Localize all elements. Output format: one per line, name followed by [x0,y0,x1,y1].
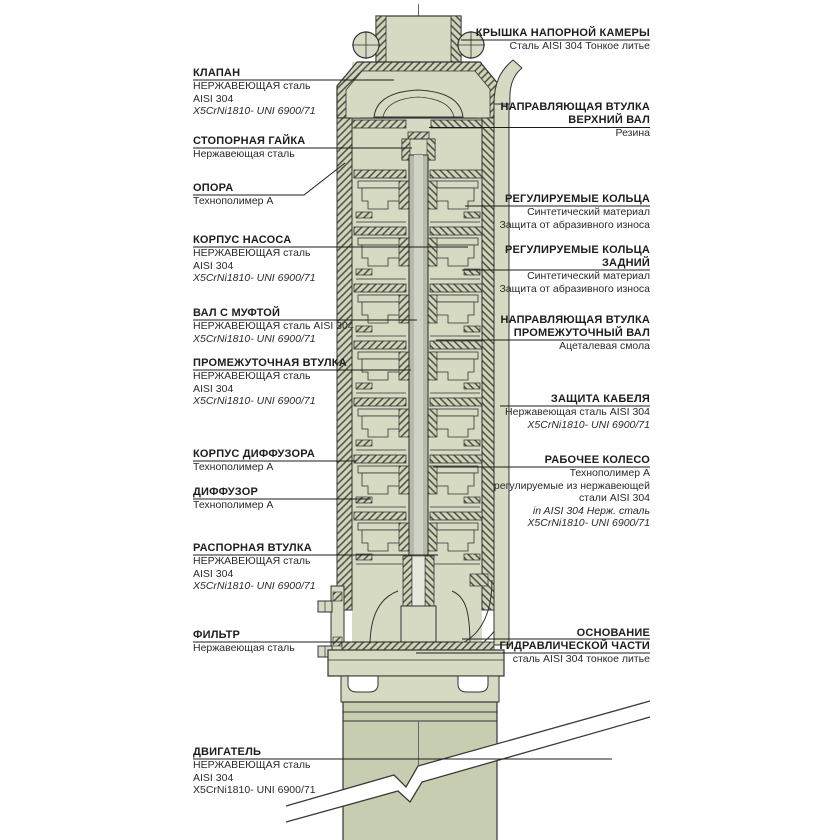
label-support: ОПОРА Технополимер А [193,182,273,208]
label-title: ДВИГАТЕЛЬ [193,746,316,759]
label-filter: ФИЛЬТР Нержавеющая сталь [193,629,295,655]
label-hydraulic-base: ОСНОВАНИЕ ГИДРАВЛИЧЕСКОЙ ЧАСТИ сталь AIS… [499,626,650,666]
hydraulic-base [328,650,504,676]
label-title: ЗАДНИЙ [499,257,650,270]
label-upper-shaft-guide-bushing: НАПРАВЛЯЮЩАЯ ВТУЛКА ВЕРХНИЙ ВАЛ Резина [500,100,650,140]
label-line: Защита от абразивного износа [499,283,650,296]
label-diffuser: ДИФФУЗОР Технополимер А [193,486,273,512]
discharge-port [376,16,461,63]
label-valve: КЛАПАН НЕРЖАВЕЮЩАЯ сталь AISI 304 X5CrNi… [193,67,316,118]
label-adjustable-rings: РЕГУЛИРУЕМЫЕ КОЛЬЦА Синтетический матери… [499,193,650,231]
label-pretitle: РЕГУЛИРУЕМЫЕ КОЛЬЦА [499,243,650,257]
label-spacer-sleeve: РАСПОРНАЯ ВТУЛКА НЕРЖАВЕЮЩАЯ сталь AISI … [193,542,316,593]
label-impeller: РАБОЧЕЕ КОЛЕСО Технополимер А регулируем… [494,454,650,530]
label-pressure-chamber-cover: КРЫШКА НАПОРНОЙ КАМЕРЫ Сталь AISI 304 То… [476,27,650,53]
label-pump-casing: КОРПУС НАСОСА НЕРЖАВЕЮЩАЯ сталь AISI 304… [193,234,316,285]
label-line: стали AISI 304 [494,492,650,505]
pump-drawing [0,0,840,840]
label-title: СТОПОРНАЯ ГАЙКА [193,135,305,148]
label-line: Сталь AISI 304 Тонкое литье [476,40,650,53]
label-pretitle: ОСНОВАНИЕ [499,626,650,640]
label-line: AISI 304 [193,772,316,785]
label-title: ПРОМЕЖУТОЧНАЯ ВТУЛКА [193,357,347,370]
label-pretitle: НАПРАВЛЯЮЩАЯ ВТУЛКА [500,100,650,114]
label-title: РАБОЧЕЕ КОЛЕСО [494,454,650,467]
shaft [409,155,428,567]
label-line: in AISI 304 Нерж. сталь [494,505,650,518]
label-title: РЕГУЛИРУЕМЫЕ КОЛЬЦА [499,193,650,206]
label-line: НЕРЖАВЕЮЩАЯ сталь [193,555,316,568]
label-title: РАСПОРНАЯ ВТУЛКА [193,542,316,555]
label-line: НЕРЖАВЕЮЩАЯ сталь [193,370,347,383]
lock-nut [408,132,429,139]
label-diffuser-casing: КОРПУС ДИФФУЗОРА Технополимер А [193,448,315,474]
label-line: X5CrNi1810- UNI 6900/71 [193,580,316,593]
label-line: X5CrNi1810- UNI 6900/71 [193,333,354,346]
label-line: НЕРЖАВЕЮЩАЯ сталь [193,759,316,772]
label-motor: ДВИГАТЕЛЬ НЕРЖАВЕЮЩАЯ сталь AISI 304 X5C… [193,746,316,797]
label-line: Технополимер А [193,195,273,208]
label-line: X5CrNi1810- UNI 6900/71 [193,784,316,797]
label-title: КРЫШКА НАПОРНОЙ КАМЕРЫ [476,27,650,40]
label-line: AISI 304 [193,568,316,581]
label-title: ВЕРХНИЙ ВАЛ [500,114,650,127]
label-intermediate-shaft-guide-bushing: НАПРАВЛЯЮЩАЯ ВТУЛКА ПРОМЕЖУТОЧНЫЙ ВАЛ Ац… [500,313,650,353]
label-line: AISI 304 [193,383,347,396]
label-title: ЗАЩИТА КАБЕЛЯ [505,393,650,406]
label-line: Нержавеющая сталь [193,642,295,655]
label-line: Технополимер А [193,461,315,474]
label-title: ОПОРА [193,182,273,195]
label-line: Синтетический материал [499,206,650,219]
label-title: ГИДРАВЛИЧЕСКОЙ ЧАСТИ [499,640,650,653]
label-title: КЛАПАН [193,67,316,80]
label-title: КОРПУС НАСОСА [193,234,316,247]
label-line: Технополимер А [494,467,650,480]
label-cable-guard: ЗАЩИТА КАБЕЛЯ Нержавеющая сталь AISI 304… [505,393,650,431]
label-intermediate-bushing: ПРОМЕЖУТОЧНАЯ ВТУЛКА НЕРЖАВЕЮЩАЯ сталь A… [193,357,347,408]
label-line: X5CrNi1810- UNI 6900/71 [505,419,650,432]
label-title: ВАЛ С МУФТОЙ [193,307,354,320]
label-pretitle: НАПРАВЛЯЮЩАЯ ВТУЛКА [500,313,650,327]
label-line: X5CrNi1810- UNI 6900/71 [494,517,650,530]
label-line: сталь AISI 304 тонкое литье [499,653,650,666]
label-line: НЕРЖАВЕЮЩАЯ сталь [193,247,316,260]
label-line: Ацеталевая смола [500,340,650,353]
label-lock-nut: СТОПОРНАЯ ГАЙКА Нержавеющая сталь [193,135,305,161]
label-line: Технополимер А [193,499,273,512]
cable-guard [494,60,522,645]
label-adjustable-rings-rear: РЕГУЛИРУЕМЫЕ КОЛЬЦА ЗАДНИЙ Синтетический… [499,243,650,295]
label-shaft-with-coupling: ВАЛ С МУФТОЙ НЕРЖАВЕЮЩАЯ сталь AISI 304 … [193,307,354,345]
label-title: ДИФФУЗОР [193,486,273,499]
label-title: ПРОМЕЖУТОЧНЫЙ ВАЛ [500,327,650,340]
label-line: Резина [500,127,650,140]
filter [318,586,344,658]
label-line: Защита от абразивного износа [499,219,650,232]
label-line: НЕРЖАВЕЮЩАЯ сталь AISI 304 [193,320,354,333]
label-line: Нержавеющая сталь AISI 304 [505,406,650,419]
label-line: AISI 304 [193,93,316,106]
label-title: ФИЛЬТР [193,629,295,642]
label-title: КОРПУС ДИФФУЗОРА [193,448,315,461]
label-line: Синтетический материал [499,270,650,283]
label-line: X5CrNi1810- UNI 6900/71 [193,105,316,118]
label-line: НЕРЖАВЕЮЩАЯ сталь [193,80,316,93]
label-line: X5CrNi1810- UNI 6900/71 [193,395,347,408]
label-line: регулируемые из нержавеющей [494,480,650,493]
coupling [401,556,436,644]
label-line: Нержавеющая сталь [193,148,305,161]
motor-neck [341,676,499,702]
label-line: X5CrNi1810- UNI 6900/71 [193,272,316,285]
diagram-page: КЛАПАН НЕРЖАВЕЮЩАЯ сталь AISI 304 X5CrNi… [0,0,840,840]
label-line: AISI 304 [193,260,316,273]
